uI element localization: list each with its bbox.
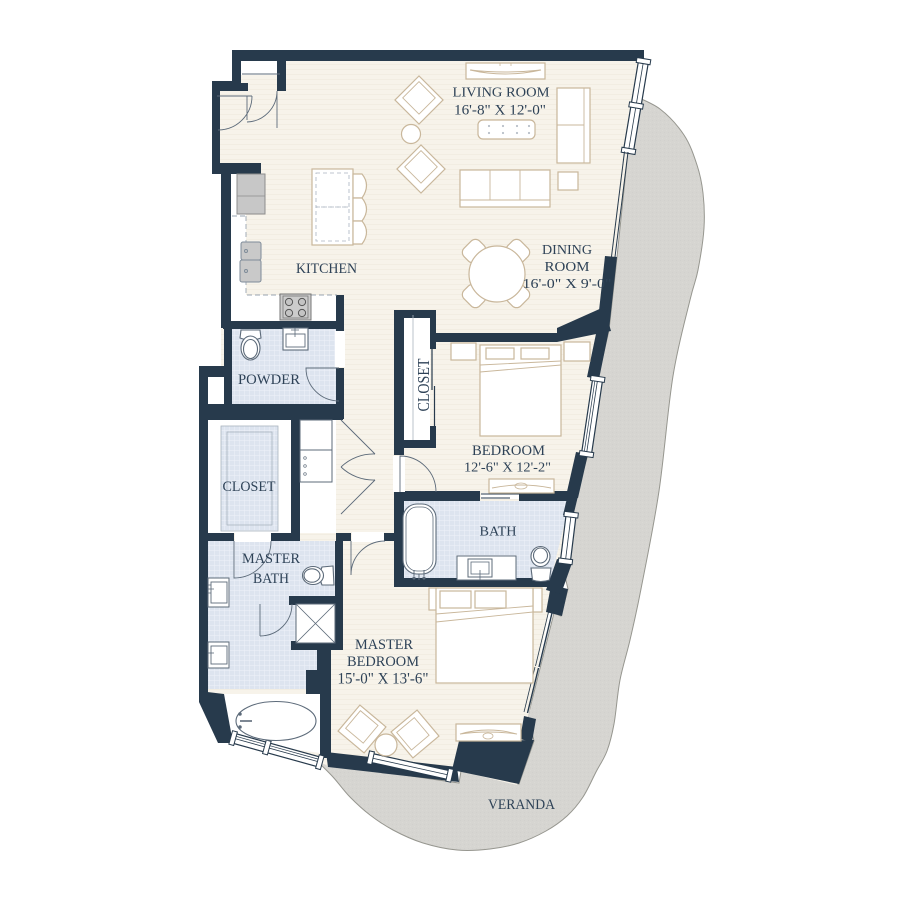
svg-text:BATH: BATH — [253, 571, 289, 587]
svg-text:CLOSET: CLOSET — [414, 358, 433, 411]
svg-text:BEDROOM: BEDROOM — [472, 443, 545, 459]
svg-text:16'-0" X 9'-0": 16'-0" X 9'-0" — [523, 277, 612, 292]
svg-text:MASTER: MASTER — [355, 637, 413, 653]
svg-text:LIVING ROOM: LIVING ROOM — [453, 85, 550, 100]
svg-text:KITCHEN: KITCHEN — [296, 261, 357, 277]
svg-text:CLOSET: CLOSET — [223, 479, 276, 495]
svg-text:MASTER: MASTER — [242, 551, 300, 567]
svg-text:BEDROOM: BEDROOM — [347, 654, 419, 670]
svg-text:ROOM: ROOM — [545, 260, 591, 275]
svg-text:15'-0" X 13'-6": 15'-0" X 13'-6" — [338, 671, 429, 688]
svg-text:POWDER: POWDER — [238, 372, 300, 388]
svg-text:16'-8" X 12'-0": 16'-8" X 12'-0" — [454, 103, 546, 119]
svg-text:BATH: BATH — [480, 525, 517, 540]
svg-text:VERANDA: VERANDA — [488, 797, 555, 813]
svg-text:DINING: DINING — [542, 243, 592, 258]
svg-text:12'-6" X 12'-2": 12'-6" X 12'-2" — [464, 461, 551, 476]
